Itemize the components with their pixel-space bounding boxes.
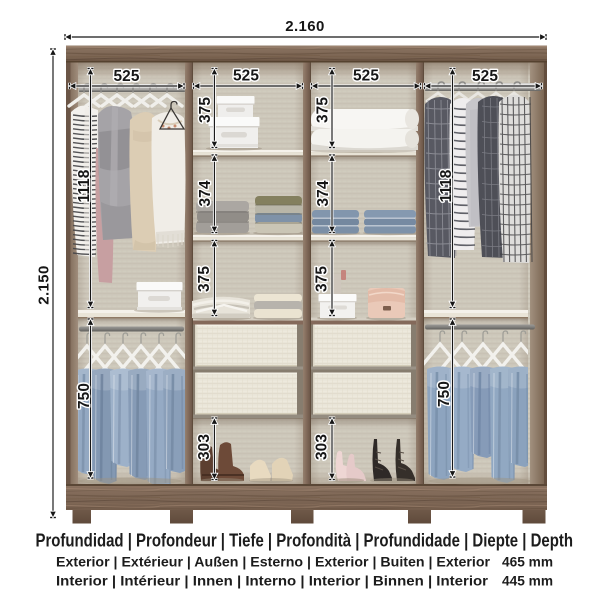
- svg-text:1118: 1118: [76, 169, 93, 202]
- svg-text:525: 525: [233, 68, 259, 85]
- svg-text:2.160: 2.160: [285, 18, 325, 35]
- svg-text:375: 375: [196, 266, 213, 292]
- svg-text:1118: 1118: [438, 169, 455, 202]
- svg-text:465 mm: 465 mm: [502, 553, 553, 569]
- svg-text:303: 303: [314, 434, 331, 460]
- svg-text:525: 525: [353, 68, 379, 85]
- svg-text:Interior | Intérieur | Innen |: Interior | Intérieur | Innen | Interno |…: [56, 572, 489, 588]
- svg-text:374: 374: [197, 180, 214, 206]
- svg-text:525: 525: [114, 68, 140, 85]
- svg-text:750: 750: [76, 383, 93, 409]
- svg-text:Exterior | Extérieur | Außen |: Exterior | Extérieur | Außen | Esterno |…: [56, 553, 491, 569]
- svg-text:525: 525: [472, 68, 498, 85]
- svg-text:375: 375: [314, 97, 331, 123]
- svg-text:2.150: 2.150: [35, 265, 52, 305]
- svg-text:750: 750: [436, 381, 453, 407]
- svg-text:Profundidad | Profondeur | Tie: Profundidad | Profondeur | Tiefe | Profo…: [36, 531, 574, 551]
- svg-text:375: 375: [314, 266, 331, 292]
- svg-text:303: 303: [196, 434, 213, 460]
- svg-text:374: 374: [315, 180, 332, 206]
- svg-text:445 mm: 445 mm: [502, 572, 553, 588]
- svg-text:375: 375: [197, 97, 214, 123]
